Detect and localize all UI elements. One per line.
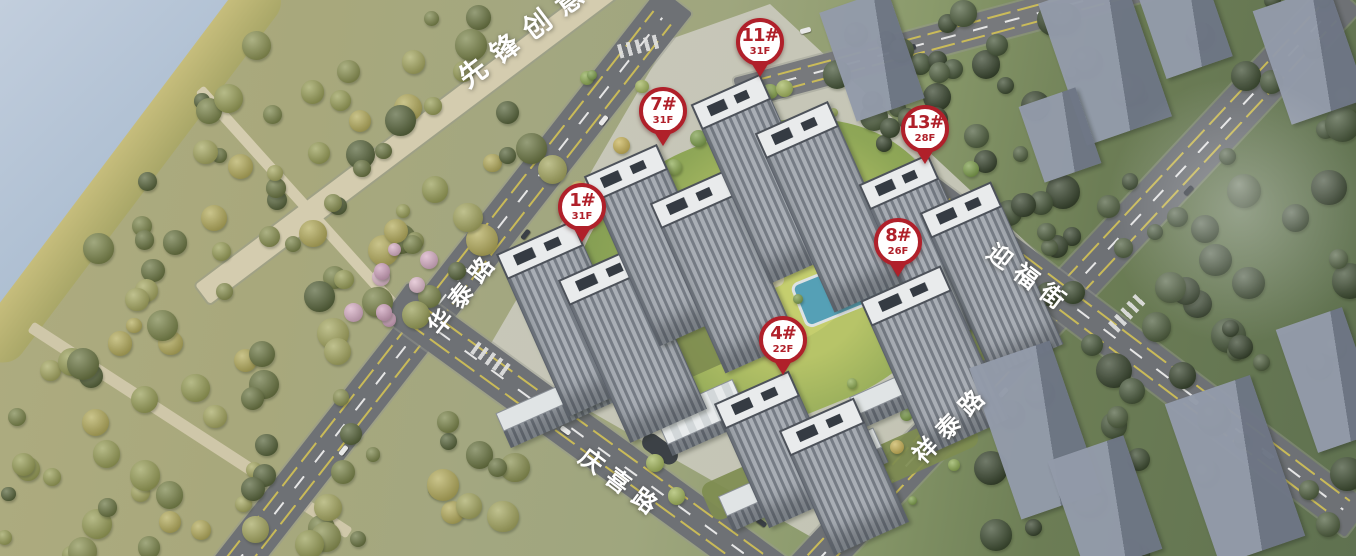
tree (299, 220, 327, 248)
tree (350, 531, 366, 547)
tree (613, 137, 630, 154)
tree (1119, 378, 1146, 405)
tree (0, 530, 12, 545)
pin-circle: 7#31F (639, 87, 687, 135)
tree (440, 433, 457, 450)
tree (908, 496, 918, 506)
building-pin-4[interactable]: 4#22F (759, 316, 807, 375)
tree (1329, 249, 1348, 268)
tree (1013, 146, 1029, 162)
pin-tail-icon (750, 61, 770, 77)
tree (388, 243, 401, 256)
tree (964, 124, 988, 148)
tree (163, 230, 187, 254)
building-pin-11[interactable]: 11#31F (736, 18, 784, 77)
tree (255, 434, 277, 456)
tree (216, 283, 233, 300)
tree (403, 235, 422, 254)
tree (646, 454, 664, 472)
tree (314, 494, 341, 521)
tree (193, 140, 217, 164)
tree (1025, 519, 1042, 536)
tree (241, 387, 264, 410)
pin-building-number: 4# (770, 325, 796, 343)
tree (334, 270, 354, 290)
tree (950, 0, 976, 26)
tree (1325, 107, 1356, 142)
pin-circle: 8#26F (874, 218, 922, 266)
tree (304, 281, 335, 312)
tree (1330, 457, 1356, 491)
pin-circle: 13#28F (901, 105, 949, 153)
tree (466, 5, 491, 30)
tree (201, 205, 227, 231)
tree (948, 459, 960, 471)
tree (424, 97, 442, 115)
tree (266, 178, 285, 197)
tree (203, 405, 227, 429)
pin-circle: 11#31F (736, 18, 784, 66)
tree (191, 520, 211, 540)
pin-floor-count: 31F (750, 47, 771, 57)
tree (409, 277, 425, 293)
tree (384, 219, 408, 243)
tree (1114, 238, 1134, 258)
tree (337, 60, 360, 83)
tree (295, 530, 324, 556)
tree (385, 105, 416, 136)
tree (420, 251, 438, 269)
tree (963, 161, 979, 177)
tree (1219, 148, 1236, 165)
pin-building-number: 7# (650, 96, 676, 114)
pin-circle: 4#22F (759, 316, 807, 364)
pin-floor-count: 31F (572, 212, 593, 222)
tree (159, 511, 181, 533)
context-building (1276, 307, 1356, 453)
tree (456, 493, 482, 519)
tree (1107, 406, 1129, 428)
tree (353, 160, 370, 177)
tree (1199, 244, 1231, 276)
tree (138, 172, 157, 191)
tree (499, 147, 516, 164)
tree (344, 303, 363, 322)
tree (1227, 174, 1261, 208)
tree (1142, 312, 1171, 341)
tree (242, 31, 272, 61)
pin-tail-icon (888, 261, 908, 277)
tree (330, 90, 351, 111)
tree (1311, 170, 1346, 205)
tree (43, 468, 61, 486)
tree (98, 498, 116, 516)
tree (249, 341, 275, 367)
pin-building-number: 13# (906, 114, 943, 132)
tree (1191, 215, 1219, 243)
tree (1122, 173, 1138, 189)
building-pin-8[interactable]: 8#26F (874, 218, 922, 277)
building-pin-7[interactable]: 7#31F (639, 87, 687, 146)
tree (68, 537, 97, 556)
pin-floor-count: 26F (888, 247, 909, 257)
tree (1228, 335, 1252, 359)
tree (125, 288, 148, 311)
tree (1037, 223, 1055, 241)
tree (402, 50, 425, 73)
tree (496, 101, 519, 124)
building-pin-13[interactable]: 13#28F (901, 105, 949, 164)
tree (263, 105, 283, 125)
tree (890, 440, 904, 454)
tree (156, 481, 184, 509)
tree (986, 34, 1008, 56)
tree (422, 176, 448, 202)
tree (1316, 512, 1341, 537)
tree (538, 155, 567, 184)
tree (130, 460, 160, 490)
tree (1041, 239, 1058, 256)
tree (242, 516, 268, 542)
tree (847, 378, 857, 388)
pin-building-number: 11# (741, 27, 778, 45)
tree (1253, 354, 1270, 371)
tree (181, 374, 209, 402)
tree (376, 304, 392, 320)
tree (8, 408, 26, 426)
site-plan-rendering: 先锋创意华泰路迎福街祥泰路庆喜路1#31F4#22F7#31F8#26F11#3… (0, 0, 1356, 556)
tree (1147, 224, 1163, 240)
tree (929, 62, 950, 83)
tree (1, 487, 15, 501)
pin-building-number: 1# (569, 192, 595, 210)
tree (340, 423, 362, 445)
tree (82, 409, 109, 436)
tree (997, 77, 1014, 94)
pin-tail-icon (572, 226, 592, 242)
tree (424, 11, 439, 26)
tree (453, 203, 482, 232)
tree (214, 84, 243, 113)
tree (241, 477, 265, 501)
tree (880, 118, 900, 138)
building-pin-1[interactable]: 1#31F (558, 183, 606, 242)
tree (349, 110, 371, 132)
tree (135, 230, 155, 250)
car (800, 27, 812, 35)
tree (126, 318, 141, 333)
pin-floor-count: 28F (915, 134, 936, 144)
tree (67, 348, 99, 380)
tree (1231, 61, 1261, 91)
pin-floor-count: 31F (653, 116, 674, 126)
tree (776, 80, 793, 97)
tree (396, 204, 410, 218)
tree (1332, 263, 1356, 299)
tree (1155, 272, 1186, 303)
tree (138, 536, 161, 556)
tree (228, 154, 253, 179)
tree (331, 460, 355, 484)
tree (83, 233, 114, 264)
pin-tail-icon (773, 359, 793, 375)
tree (1167, 207, 1187, 227)
tree (301, 80, 325, 104)
tree (259, 226, 280, 247)
tree (366, 447, 381, 462)
tree (1169, 362, 1195, 388)
pin-building-number: 8# (885, 227, 911, 245)
tree (308, 142, 330, 164)
pin-floor-count: 22F (773, 345, 794, 355)
pin-circle: 1#31F (558, 183, 606, 231)
tree (980, 519, 1011, 550)
tree (1232, 267, 1264, 299)
tree (93, 440, 121, 468)
tree (324, 338, 351, 365)
tree (427, 469, 459, 501)
tree (108, 331, 132, 355)
tree (375, 143, 391, 159)
tree (285, 236, 302, 253)
tree (1011, 193, 1036, 218)
tree (437, 411, 459, 433)
tree (487, 501, 518, 532)
pin-tail-icon (915, 148, 935, 164)
pin-tail-icon (653, 130, 673, 146)
tree (1282, 204, 1310, 232)
